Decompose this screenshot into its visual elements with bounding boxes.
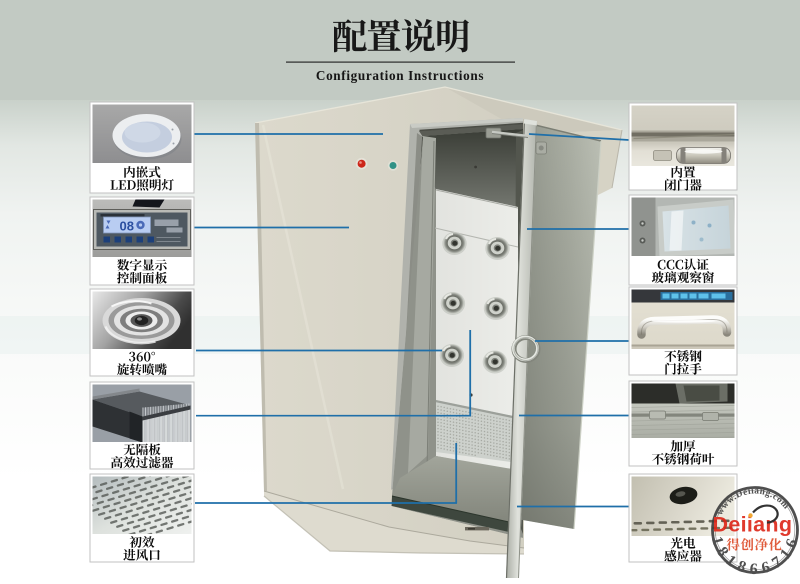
svg-text:Configuration Instructions: Configuration Instructions	[316, 68, 484, 83]
svg-text:6: 6	[749, 561, 758, 578]
svg-text:08: 08	[120, 219, 134, 234]
